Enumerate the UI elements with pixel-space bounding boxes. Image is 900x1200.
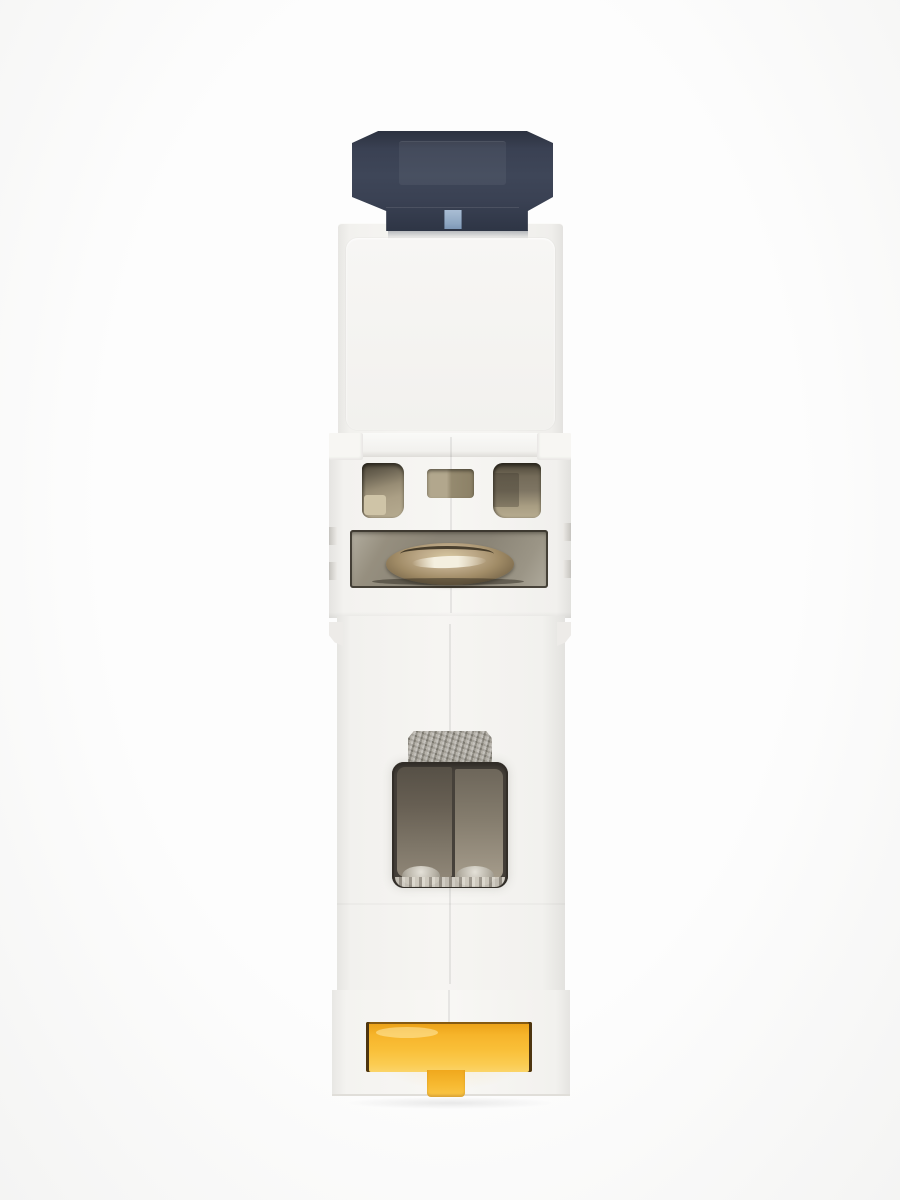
side-notch-right-1	[563, 523, 571, 541]
corner-tab-left	[329, 622, 343, 646]
terminal-screw-slot	[350, 530, 548, 588]
side-notch-left-2	[329, 562, 337, 580]
housing-face-panel	[346, 238, 555, 430]
ledge-tab-left	[329, 433, 363, 460]
vent-opening-left	[362, 463, 404, 518]
breaker-toggle-lever	[352, 131, 553, 231]
housing-bottom-section	[332, 990, 570, 1096]
mold-seam-line	[448, 990, 450, 1024]
vent-opening-center	[427, 469, 474, 498]
vent-left-inner-floor	[364, 495, 386, 515]
ledge-tab-right	[537, 433, 571, 460]
housing-mid-section	[329, 433, 571, 618]
rough-metal-tab	[408, 731, 492, 764]
din-rail-clip-stem	[427, 1070, 465, 1097]
clamp-plate-left	[397, 767, 452, 877]
product-photo-circuit-breaker	[0, 0, 900, 1200]
corner-tab-right	[557, 622, 571, 646]
vent-opening-right	[493, 463, 541, 518]
housing-top-section	[338, 223, 563, 435]
toggle-ridge-line	[386, 207, 519, 208]
housing-lower-section	[337, 616, 565, 992]
vent-right-inner-shadow	[493, 473, 519, 507]
side-notch-right-2	[563, 560, 571, 578]
clip-highlight	[376, 1027, 438, 1038]
ground-shadow	[345, 1097, 555, 1109]
toggle-stem-shadow	[388, 230, 528, 239]
clamp-base-silver-band	[395, 877, 505, 887]
toggle-top-panel	[399, 141, 506, 185]
din-rail-clip-bar	[366, 1022, 532, 1072]
toggle-indicator-mark	[444, 210, 462, 229]
terminal-clamp-opening	[392, 762, 508, 888]
screw-under-shadow	[372, 578, 524, 585]
clamp-plate-right	[455, 769, 503, 879]
housing-step-line	[337, 903, 565, 905]
side-notch-left-1	[329, 527, 337, 545]
